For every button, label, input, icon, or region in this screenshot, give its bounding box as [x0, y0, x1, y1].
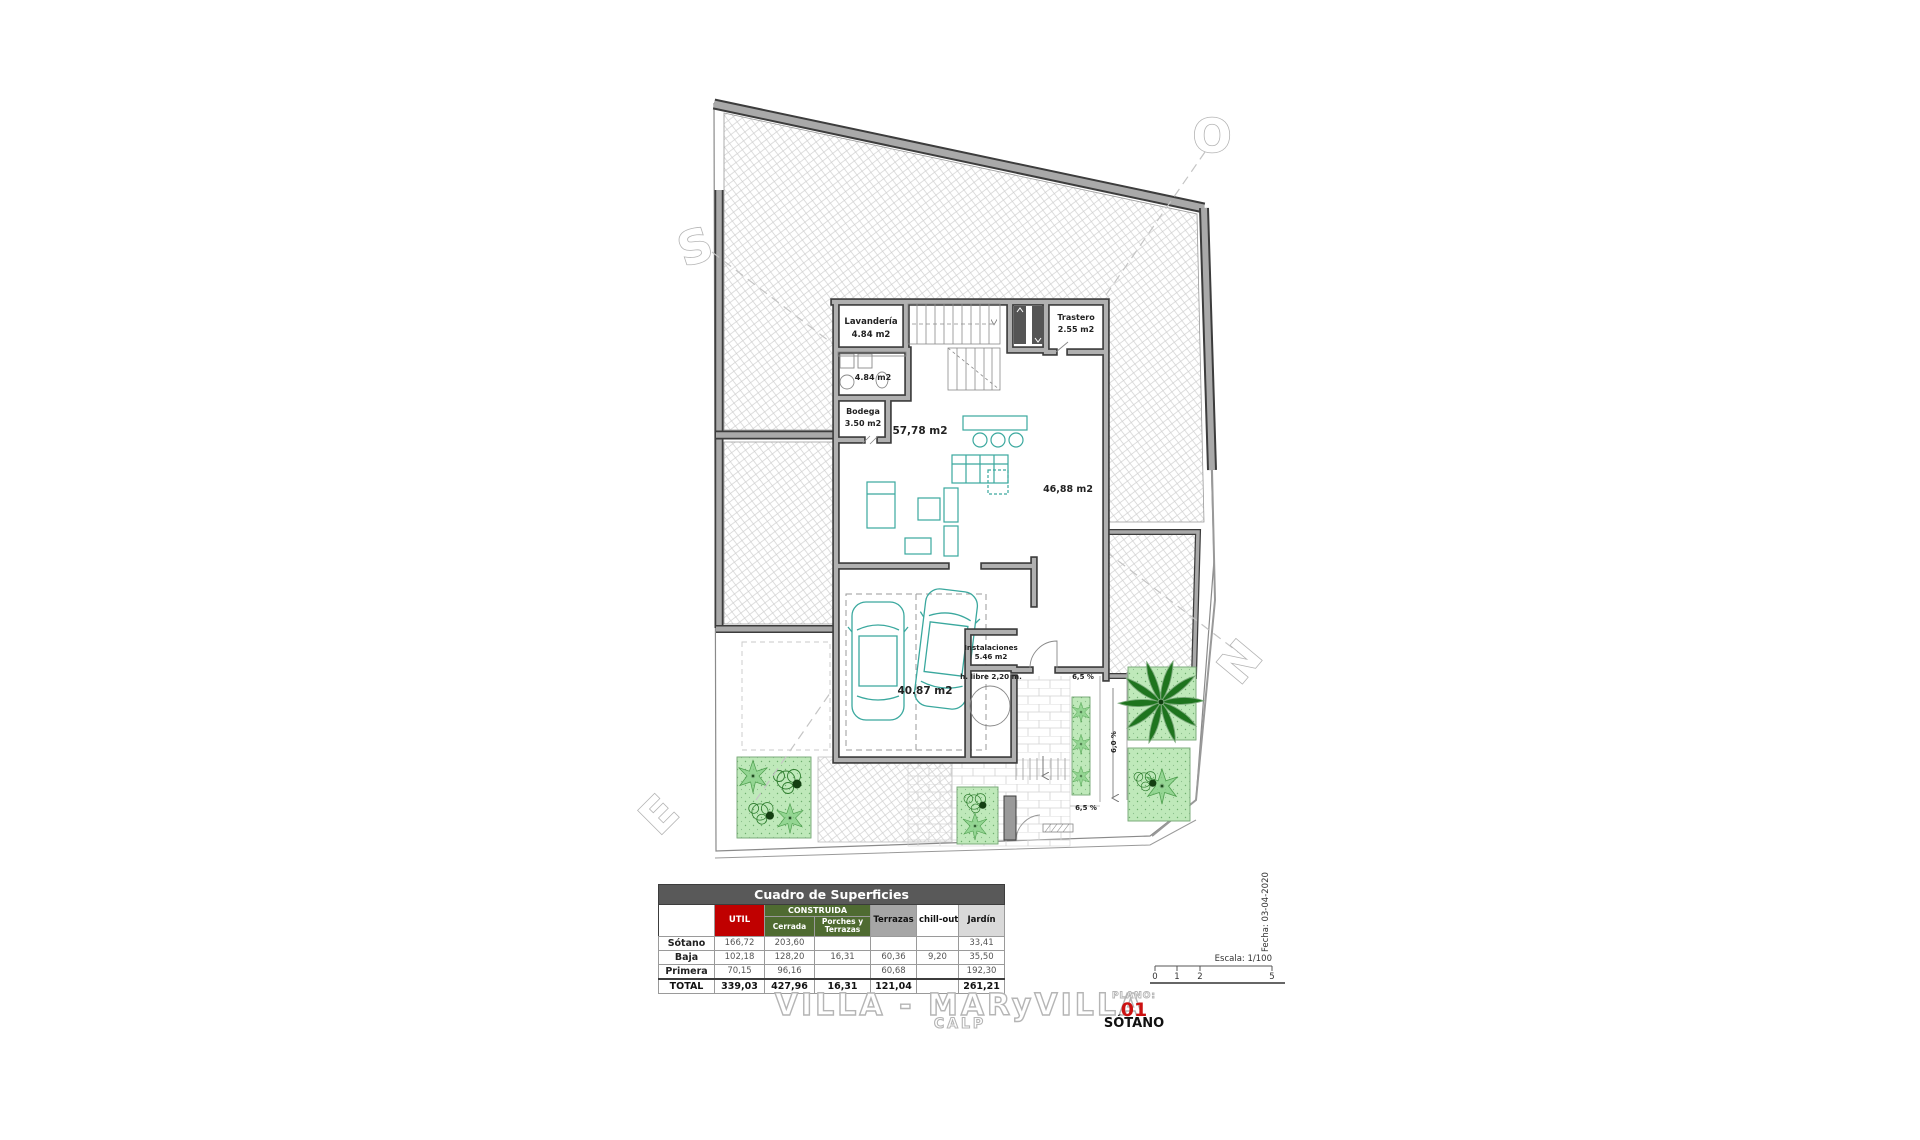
table-cell — [917, 936, 959, 950]
col-header-util: UTIL — [715, 905, 765, 937]
table-row-baja: Baja 102,18 128,20 16,31 60,36 9,20 35,5… — [659, 950, 1005, 964]
col-header-terrazas: Terrazas — [871, 905, 917, 937]
garden-left — [737, 757, 811, 838]
label-garage-area: 40.87 m2 — [897, 685, 952, 697]
label-bath-area: 4.84 m2 — [855, 373, 891, 382]
label-bodega-area: 3.50 m2 — [845, 419, 881, 428]
label-clearance: h. libre 2,20 m. — [960, 672, 1022, 681]
compass-east: E — [628, 784, 688, 844]
plano-name: SÓTANO — [1094, 1016, 1174, 1031]
label-slope-bottom: 6,5 % — [1075, 804, 1097, 812]
table-cell: 60,36 — [871, 950, 917, 964]
table-cell: 166,72 — [715, 936, 765, 950]
date-label: Fecha: 03-04-2020 — [1261, 872, 1271, 952]
garden-strip — [1072, 697, 1090, 795]
row-label: Baja — [659, 950, 715, 964]
row-label: Sótano — [659, 936, 715, 950]
scale-tick-2: 2 — [1197, 972, 1202, 982]
label-trastero-area: 2.55 m2 — [1058, 325, 1094, 334]
table-row-primera: Primera 70,15 96,16 60,68 192,30 — [659, 964, 1005, 979]
table-title: Cuadro de Superficies — [659, 885, 1005, 905]
col-header-jardin: Jardín — [959, 905, 1005, 937]
label-instalaciones-area: 5.46 m2 — [975, 652, 1008, 661]
label-bodega: Bodega — [846, 407, 880, 416]
hatch-lower-right — [1106, 532, 1198, 676]
col-header-construida: CONSTRUIDA — [765, 905, 871, 917]
label-hall-area: 46,88 m2 — [1043, 484, 1093, 495]
scale-label: Escala: 1/100 — [1215, 954, 1272, 964]
col-header-porches: Porches y Terrazas — [815, 917, 871, 937]
label-slope-side: 6,0 % — [1110, 731, 1118, 753]
label-trastero: Trastero — [1057, 313, 1095, 322]
compass-north: N — [1207, 630, 1273, 694]
label-lavanderia: Lavandería — [844, 317, 897, 327]
table-cell: 70,15 — [715, 964, 765, 979]
row-label: TOTAL — [659, 979, 715, 994]
label-living-area: 57,78 m2 — [892, 425, 947, 437]
table-cell: 60,68 — [871, 964, 917, 979]
label-instalaciones: Instalaciones — [964, 643, 1018, 652]
table-cell: 9,20 — [917, 950, 959, 964]
table-row-sotano: Sótano 166,72 203,60 33,41 — [659, 936, 1005, 950]
table-cell: 16,31 — [815, 950, 871, 964]
table-cell — [871, 936, 917, 950]
label-lavanderia-area: 4.84 m2 — [852, 330, 891, 340]
table-cell: 192,30 — [959, 964, 1005, 979]
table-cell: 102,18 — [715, 950, 765, 964]
table-header-row-1: UTIL CONSTRUIDA Terrazas chill-out Jardí… — [659, 905, 1005, 917]
scale-tick-1: 1 — [1174, 972, 1179, 982]
table-cell: 96,16 — [765, 964, 815, 979]
table-cell: 33,41 — [959, 936, 1005, 950]
scale-tick-5: 5 — [1269, 972, 1274, 982]
table-cell — [917, 964, 959, 979]
compass-south: S — [671, 216, 719, 278]
label-slope-top: 6,5 % — [1072, 673, 1094, 681]
garden-right-lower — [1128, 748, 1190, 821]
hatch-left-strip — [724, 442, 834, 624]
row-label: Primera — [659, 964, 715, 979]
scale-tick-0: 0 — [1152, 972, 1157, 982]
table-cell: 128,20 — [765, 950, 815, 964]
scale-bar: 0 1 2 5 Escala: 1/100 Fecha: 03-04-2020 — [1150, 872, 1285, 983]
table-title-row: Cuadro de Superficies — [659, 885, 1005, 905]
table-cell: 203,60 — [765, 936, 815, 950]
garden-center — [957, 787, 998, 844]
table-cell — [815, 936, 871, 950]
table-cell: 35,50 — [959, 950, 1005, 964]
col-header-cerrada: Cerrada — [765, 917, 815, 937]
table-cell — [815, 964, 871, 979]
compass-west: O — [1192, 109, 1231, 163]
garden-right-palm — [1118, 660, 1203, 744]
col-header-chillout: chill-out — [917, 905, 959, 937]
surface-table: Cuadro de Superficies UTIL CONSTRUIDA Te… — [658, 884, 1005, 994]
table-cell: 339,03 — [715, 979, 765, 994]
plan-sheet: { "document": { "title": "VILLA - MARyVI… — [0, 0, 1920, 1140]
